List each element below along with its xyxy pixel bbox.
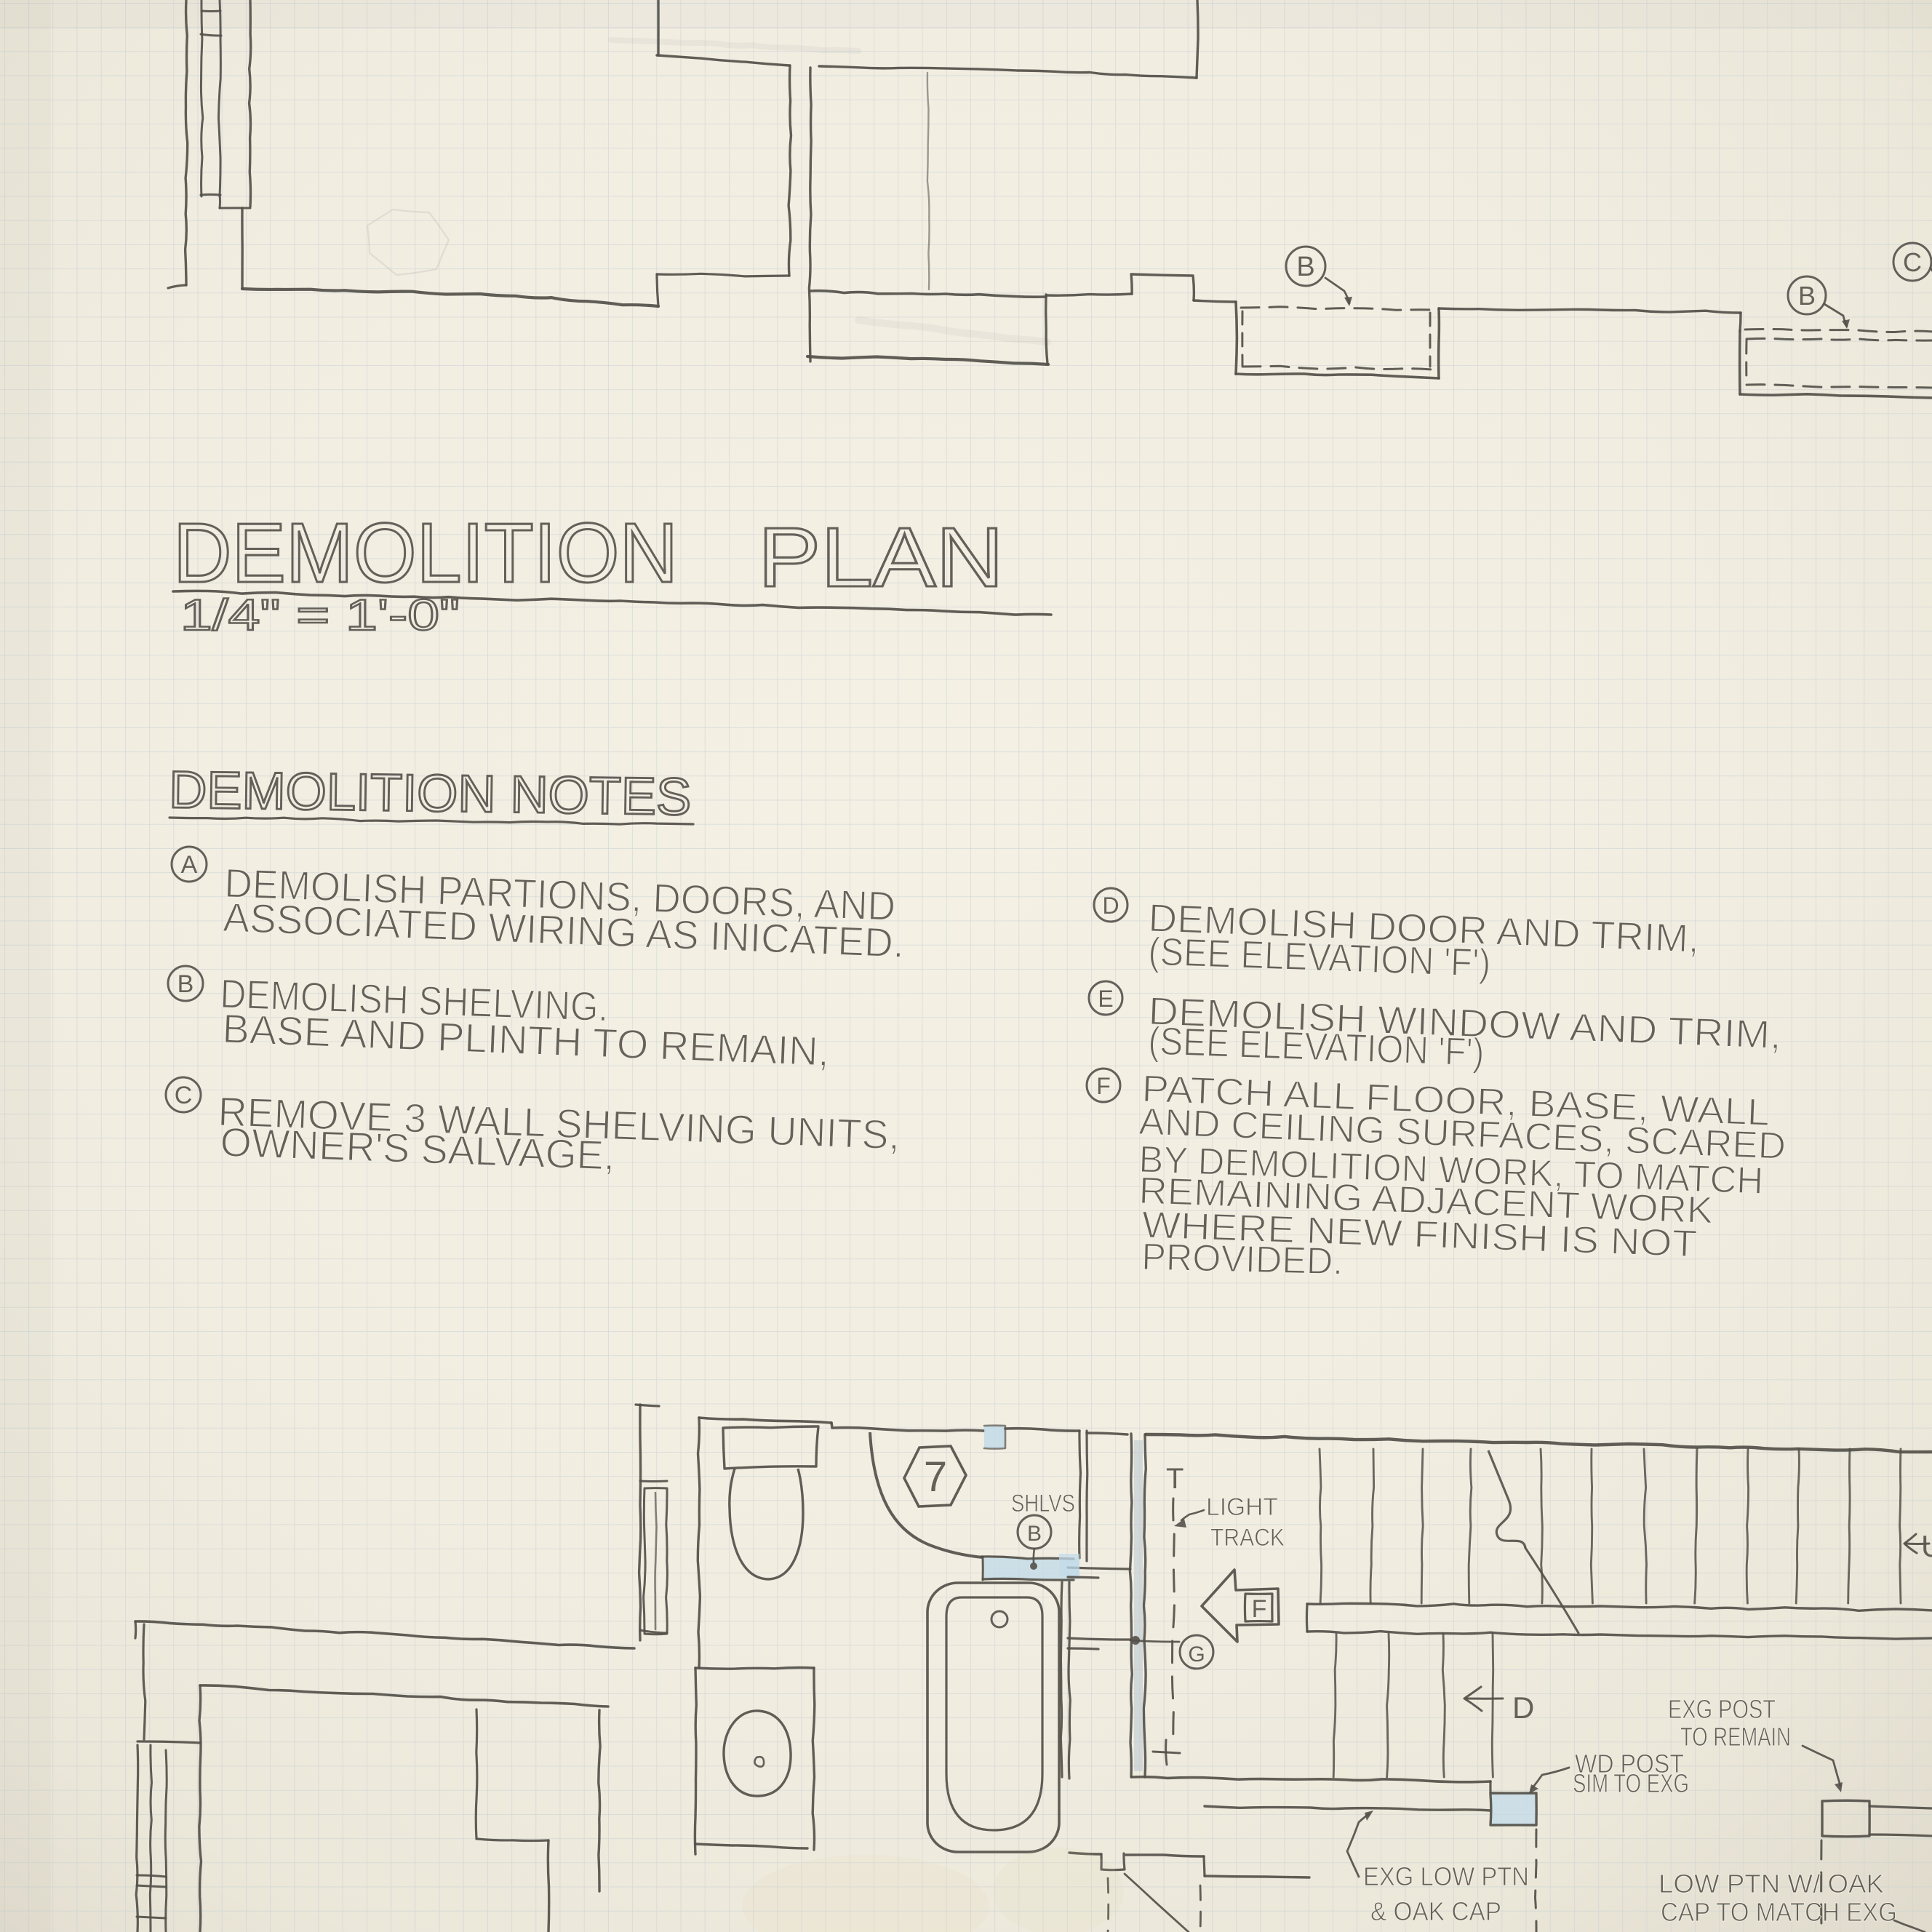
svg-text:LOW PTN W/ OAK: LOW PTN W/ OAK: [1658, 1869, 1884, 1899]
svg-text:DEMOLITION NOTES: DEMOLITION NOTES: [169, 761, 692, 826]
svg-text:DEMOLITION: DEMOLITION: [173, 506, 678, 600]
svg-text:F: F: [1252, 1595, 1267, 1623]
svg-text:T: T: [1166, 1463, 1183, 1495]
svg-text:& OAK CAP: & OAK CAP: [1370, 1896, 1501, 1926]
svg-text:PROVIDED.: PROVIDED.: [1141, 1236, 1344, 1283]
svg-text:TO REMAIN: TO REMAIN: [1680, 1722, 1791, 1752]
svg-text:U: U: [1921, 1529, 1932, 1563]
svg-text:1/4" = 1'-0": 1/4" = 1'-0": [180, 591, 460, 639]
svg-text:D: D: [1512, 1691, 1534, 1725]
svg-text:B: B: [1798, 281, 1816, 311]
svg-text:F: F: [1096, 1073, 1111, 1099]
svg-text:B: B: [1296, 252, 1314, 282]
svg-text:C: C: [175, 1082, 193, 1109]
svg-text:B: B: [1027, 1522, 1042, 1546]
svg-text:D: D: [1102, 893, 1119, 919]
svg-text:C: C: [1903, 247, 1922, 277]
svg-text:E: E: [1098, 986, 1113, 1012]
svg-text:A: A: [181, 851, 198, 879]
svg-text:LIGHT: LIGHT: [1206, 1493, 1278, 1521]
svg-text:G: G: [1188, 1642, 1205, 1666]
svg-text:7: 7: [924, 1453, 947, 1501]
svg-text:CAP TO MATCH EXG: CAP TO MATCH EXG: [1661, 1897, 1897, 1927]
svg-text:SHLVS: SHLVS: [1011, 1490, 1075, 1517]
svg-text:PLAN: PLAN: [758, 510, 1004, 604]
svg-text:EXG POST: EXG POST: [1668, 1694, 1776, 1724]
svg-text:SIM TO EXG: SIM TO EXG: [1573, 1768, 1689, 1798]
svg-text:TRACK: TRACK: [1210, 1524, 1285, 1552]
svg-text:B: B: [177, 970, 194, 998]
svg-text:EXG LOW PTN: EXG LOW PTN: [1363, 1861, 1529, 1891]
